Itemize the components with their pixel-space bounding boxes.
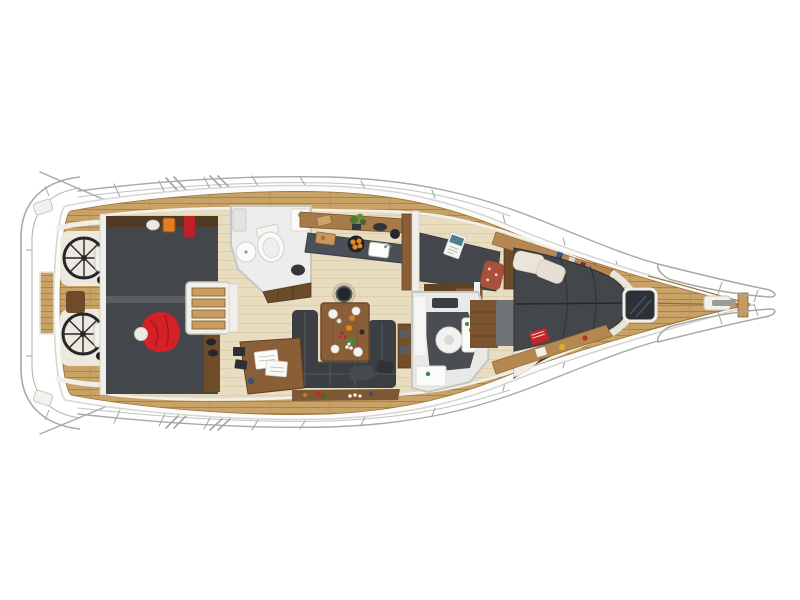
cockpit-table [66, 291, 85, 313]
forward-corridor [470, 300, 516, 348]
nav-instrument-1 [233, 347, 245, 356]
anchor-bar [712, 300, 736, 306]
shoes [206, 339, 216, 346]
shelf-bowl [373, 223, 387, 231]
yacht-topview-svg: Top-down cutaway view of a sailing yacht… [0, 0, 800, 600]
salon-table [321, 303, 369, 361]
towel [432, 298, 458, 308]
salad [346, 337, 356, 345]
hifi-item-1 [400, 330, 410, 338]
aft-cabin-shelf [106, 216, 218, 227]
mast-base [337, 287, 352, 302]
sink-drain [244, 250, 247, 253]
yacht-layout-figure: Top-down cutaway view of a sailing yacht… [0, 0, 800, 600]
shoes-2 [208, 350, 218, 357]
galley-sink [368, 242, 392, 259]
v-berth-seam [516, 303, 626, 304]
berth-foot-step [496, 300, 516, 346]
wardrobe-column [504, 247, 514, 289]
fruit-bowl [348, 236, 365, 253]
chart-paper-2 [265, 360, 287, 377]
bread [321, 236, 325, 240]
hamper [291, 265, 305, 276]
pushpit-gear-bottom [33, 390, 54, 407]
companionway-threshold [229, 284, 238, 332]
candle [337, 319, 341, 323]
white-gear-item [147, 220, 160, 230]
foredeck-hatch [624, 289, 656, 321]
white-cap [135, 328, 148, 341]
soap [426, 372, 430, 376]
head-vanity [416, 366, 446, 386]
companionway [186, 282, 238, 334]
galley-tall-cabinet [402, 214, 412, 290]
bowl [349, 315, 355, 321]
bottle [359, 329, 364, 334]
head-panel-left [414, 296, 426, 356]
anchor-channel [738, 293, 748, 317]
mirror-cabinet [233, 209, 246, 231]
hifi-item-2 [400, 346, 410, 354]
pushpit-gear-top [33, 199, 54, 216]
galley-bulkhead [412, 211, 419, 291]
cutting-board [315, 232, 335, 246]
food-orange [346, 325, 352, 331]
red-case [184, 216, 195, 237]
orange-box [163, 218, 175, 232]
shower-drain [444, 335, 454, 345]
aft-bulkhead [100, 214, 107, 395]
nav-instrument-2 [234, 359, 247, 370]
plant-pot [352, 224, 361, 230]
nav-gadget [248, 378, 254, 384]
salon-hull-shelf [292, 389, 400, 401]
kettle [390, 229, 400, 239]
swim-platform [40, 272, 54, 334]
